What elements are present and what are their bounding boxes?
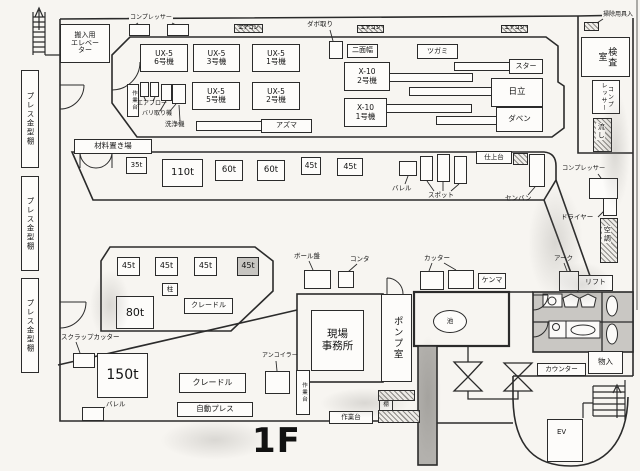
compressor-top-box-1 <box>129 24 150 36</box>
machine-hitachi: 日立 <box>491 78 543 107</box>
cutter-box-1 <box>420 271 444 290</box>
compressor-right-box <box>589 178 618 199</box>
compressor-vert-box: コンプ レッサー <box>592 80 620 114</box>
spot-box-3 <box>454 156 467 184</box>
label-baritori: バリ取り機 <box>142 111 172 117</box>
press-45t-2: 45t <box>337 158 363 176</box>
toilet-block <box>533 292 633 352</box>
aircon-box-3: エアコン <box>501 25 528 33</box>
press-mold-shelf-1: プレス金型棚 <box>21 70 39 168</box>
label-spot: スポット <box>428 192 454 199</box>
shelf-hatch-1 <box>378 390 415 401</box>
shelf-hatch-right <box>513 153 528 165</box>
machine-ux5-6: UX-5 6号機 <box>140 44 188 72</box>
label-aircon-duct: 空調 <box>602 226 611 243</box>
compressor-top-box-2 <box>167 24 189 36</box>
machine-ux5-2: UX-5 2号機 <box>252 82 300 110</box>
label-cutter: カッター <box>424 255 450 262</box>
water-channel <box>418 346 437 465</box>
label-dryer: ドライヤー <box>561 214 593 221</box>
press-60t-2: 60t <box>257 160 285 181</box>
lift: リフト <box>578 275 613 291</box>
toilet-icon <box>607 296 618 316</box>
label-washer: 洗浄機 <box>165 121 185 128</box>
cutter-box-2 <box>448 270 474 289</box>
stairs-up-arrow-icon <box>613 385 621 418</box>
machine-tsugami: ツガミ <box>417 44 458 59</box>
machine-ux5-5: UX-5 5号機 <box>192 82 240 110</box>
kenma: ケンマ <box>478 273 506 289</box>
machine-azuma: アズマ <box>261 119 312 133</box>
press-45t-3: 45t <box>117 257 140 276</box>
bathtub-icon <box>571 325 595 335</box>
washer-box <box>172 84 186 104</box>
baritori-box <box>161 84 172 101</box>
dryer-box <box>603 198 617 216</box>
auto-press: 自動プレス <box>177 402 253 417</box>
cradle-mid: クレードル <box>184 298 233 314</box>
counter: カウンター <box>537 363 586 376</box>
airblow-box-1 <box>140 82 149 97</box>
press-45t-4: 45t <box>155 257 178 276</box>
label-barrel-mid: バレル <box>392 185 412 192</box>
toilet-sink-icon <box>548 297 556 305</box>
workbench-bottom: 作業台 <box>329 411 373 424</box>
label-uncoiler: アンコイラー <box>262 353 298 359</box>
press-60t-1: 60t <box>215 160 243 181</box>
material-storage: 材料置き場 <box>74 139 152 154</box>
pump-room: ポンプ室 <box>381 294 412 382</box>
senban-box <box>529 154 545 187</box>
bar-x10-2 <box>389 73 473 82</box>
label-drill-press: ボール盤 <box>294 253 320 260</box>
washstand-icons <box>454 346 532 399</box>
arc-box <box>559 271 579 291</box>
machine-x10-2: X-10 2号機 <box>344 62 390 91</box>
finishing-table: 仕上台 <box>476 151 512 164</box>
ev-box <box>547 419 583 462</box>
label-arc: アーク <box>554 255 573 262</box>
scan-edge-line <box>636 0 638 310</box>
press-mold-shelf-3: プレス金型棚 <box>21 278 39 373</box>
floorplan-walls <box>0 0 640 471</box>
machine-ux5-1: UX-5 1号機 <box>252 44 300 72</box>
label-ev: EV <box>557 429 566 436</box>
spot-box-2 <box>437 154 450 182</box>
scrap-cutter-box <box>73 353 95 368</box>
scanned-floorplan-1f: 搬入用 エレベー タープレス金型棚プレス金型棚プレス金型棚UX-5 6号機UX-… <box>0 0 640 471</box>
press-35t: 35t <box>126 157 147 174</box>
label-senban: センバン <box>505 195 531 202</box>
press-45t-1: 45t <box>301 157 321 175</box>
machine-star: スター <box>509 59 543 74</box>
dabotori-box <box>329 41 343 59</box>
spot-box-1 <box>420 156 433 181</box>
label-dabotori: ダボ取り <box>306 21 334 28</box>
label-compressor-right: コンプレッサー <box>562 166 605 173</box>
workbench-left-vert: 作業台 <box>296 370 310 415</box>
barrel-bottom-box <box>82 407 104 421</box>
airblow-box-2 <box>150 82 159 97</box>
label-conta: コンタ <box>350 256 370 263</box>
label-cleaning-storage: 掃除用具入 <box>602 12 634 18</box>
stairs-top-left <box>33 8 60 55</box>
cradle-bottom: クレードル <box>179 373 246 393</box>
uncoiler-box <box>265 371 290 394</box>
press-45t-5: 45t <box>194 257 217 276</box>
bar-x10-1 <box>386 104 472 113</box>
storage-small-room: 物入 <box>588 351 623 374</box>
machine-ux5-3: UX-5 3号機 <box>193 44 240 72</box>
bar-daben <box>436 116 497 125</box>
press-mold-shelf-2: プレス金型棚 <box>21 176 39 271</box>
machine-x10-1: X-10 1号機 <box>344 98 387 127</box>
drill-press-box <box>304 270 331 289</box>
press-45t-6: 45t <box>237 257 259 276</box>
pond: 池 <box>433 310 467 333</box>
bar-hitachi <box>409 87 492 96</box>
aircon-box-2: エアコン <box>357 25 384 33</box>
stairs-bottom-right <box>583 380 625 420</box>
label-scrap-cutter: スクラップカッター <box>61 334 120 341</box>
aircon-box-1: エアコン <box>234 24 263 33</box>
label-sink: 流し <box>596 123 605 140</box>
inspection-room: 検査 室 <box>581 37 630 77</box>
pillar: 柱 <box>162 283 178 296</box>
label-barrel-bottom: バレル <box>106 401 126 408</box>
floor-title: 1F <box>252 424 301 460</box>
cleaning-storage-box <box>584 22 599 31</box>
barrel-mid-box <box>399 161 417 176</box>
toilet-icon <box>607 324 618 344</box>
elevator-room: 搬入用 エレベー ター <box>60 24 110 63</box>
machine-daben: ダベン <box>496 107 543 132</box>
bar-azuma <box>196 121 262 131</box>
press-110t: 110t <box>162 159 203 187</box>
press-80t: 80t <box>116 296 154 329</box>
label-airblow: エアブロー <box>137 101 167 107</box>
machine-nimenhaba: 二面幅 <box>347 44 378 58</box>
bar-star <box>454 62 510 71</box>
conta-box <box>338 271 354 288</box>
press-150t: 150t <box>97 353 148 398</box>
site-office: 現場 事務所 <box>311 310 364 371</box>
shelf-hatch-2 <box>378 410 420 423</box>
label-compressor-top: コンプレッサー <box>129 15 173 21</box>
toilet-sink-icon <box>553 324 560 331</box>
